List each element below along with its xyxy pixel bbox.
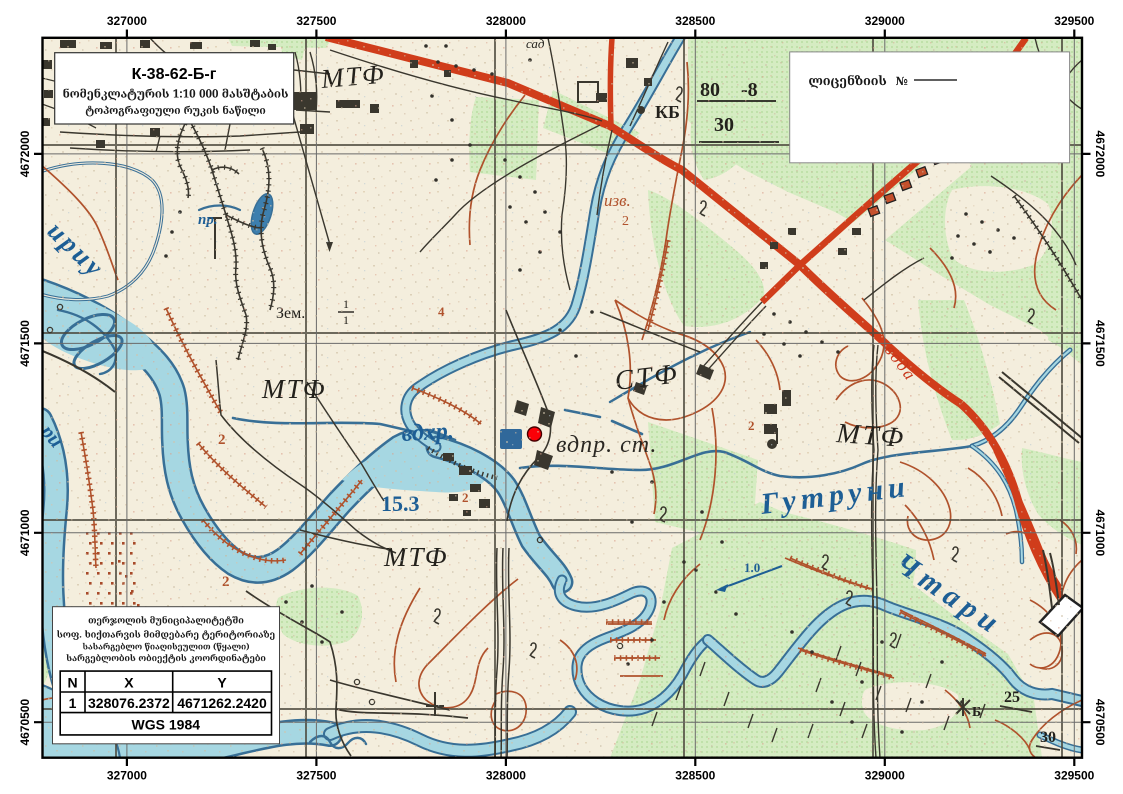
svg-text:329500: 329500 (1054, 14, 1094, 28)
svg-text:1: 1 (69, 695, 77, 711)
svg-text:327000: 327000 (107, 14, 147, 28)
svg-text:Y: Y (217, 675, 227, 691)
svg-text:328000: 328000 (486, 14, 526, 28)
svg-text:4671000: 4671000 (18, 509, 32, 556)
svg-text:К-38-62-Б-г: К-38-62-Б-г (132, 66, 217, 83)
svg-text:328000: 328000 (486, 769, 526, 783)
svg-text:4671500: 4671500 (18, 320, 32, 367)
svg-text:4672000: 4672000 (1093, 131, 1107, 178)
svg-text:N: N (67, 675, 77, 691)
svg-text:327500: 327500 (296, 769, 336, 783)
svg-text:4672000: 4672000 (18, 130, 32, 177)
svg-text:WGS 1984: WGS 1984 (132, 717, 201, 733)
svg-text:328500: 328500 (675, 769, 715, 783)
svg-text:4670500: 4670500 (1093, 699, 1107, 746)
svg-text:4671500: 4671500 (1093, 320, 1107, 367)
svg-text:4670500: 4670500 (18, 699, 32, 746)
svg-text:327500: 327500 (296, 14, 336, 28)
svg-text:4671000: 4671000 (1093, 509, 1107, 556)
svg-text:X: X (124, 675, 134, 691)
svg-text:327000: 327000 (107, 769, 147, 783)
svg-text:4671262.2420: 4671262.2420 (177, 695, 267, 711)
svg-text:329000: 329000 (865, 14, 905, 28)
svg-text:328076.2372: 328076.2372 (88, 695, 170, 711)
svg-text:329500: 329500 (1054, 769, 1094, 783)
svg-text:328500: 328500 (675, 14, 715, 28)
svg-text:329000: 329000 (865, 769, 905, 783)
